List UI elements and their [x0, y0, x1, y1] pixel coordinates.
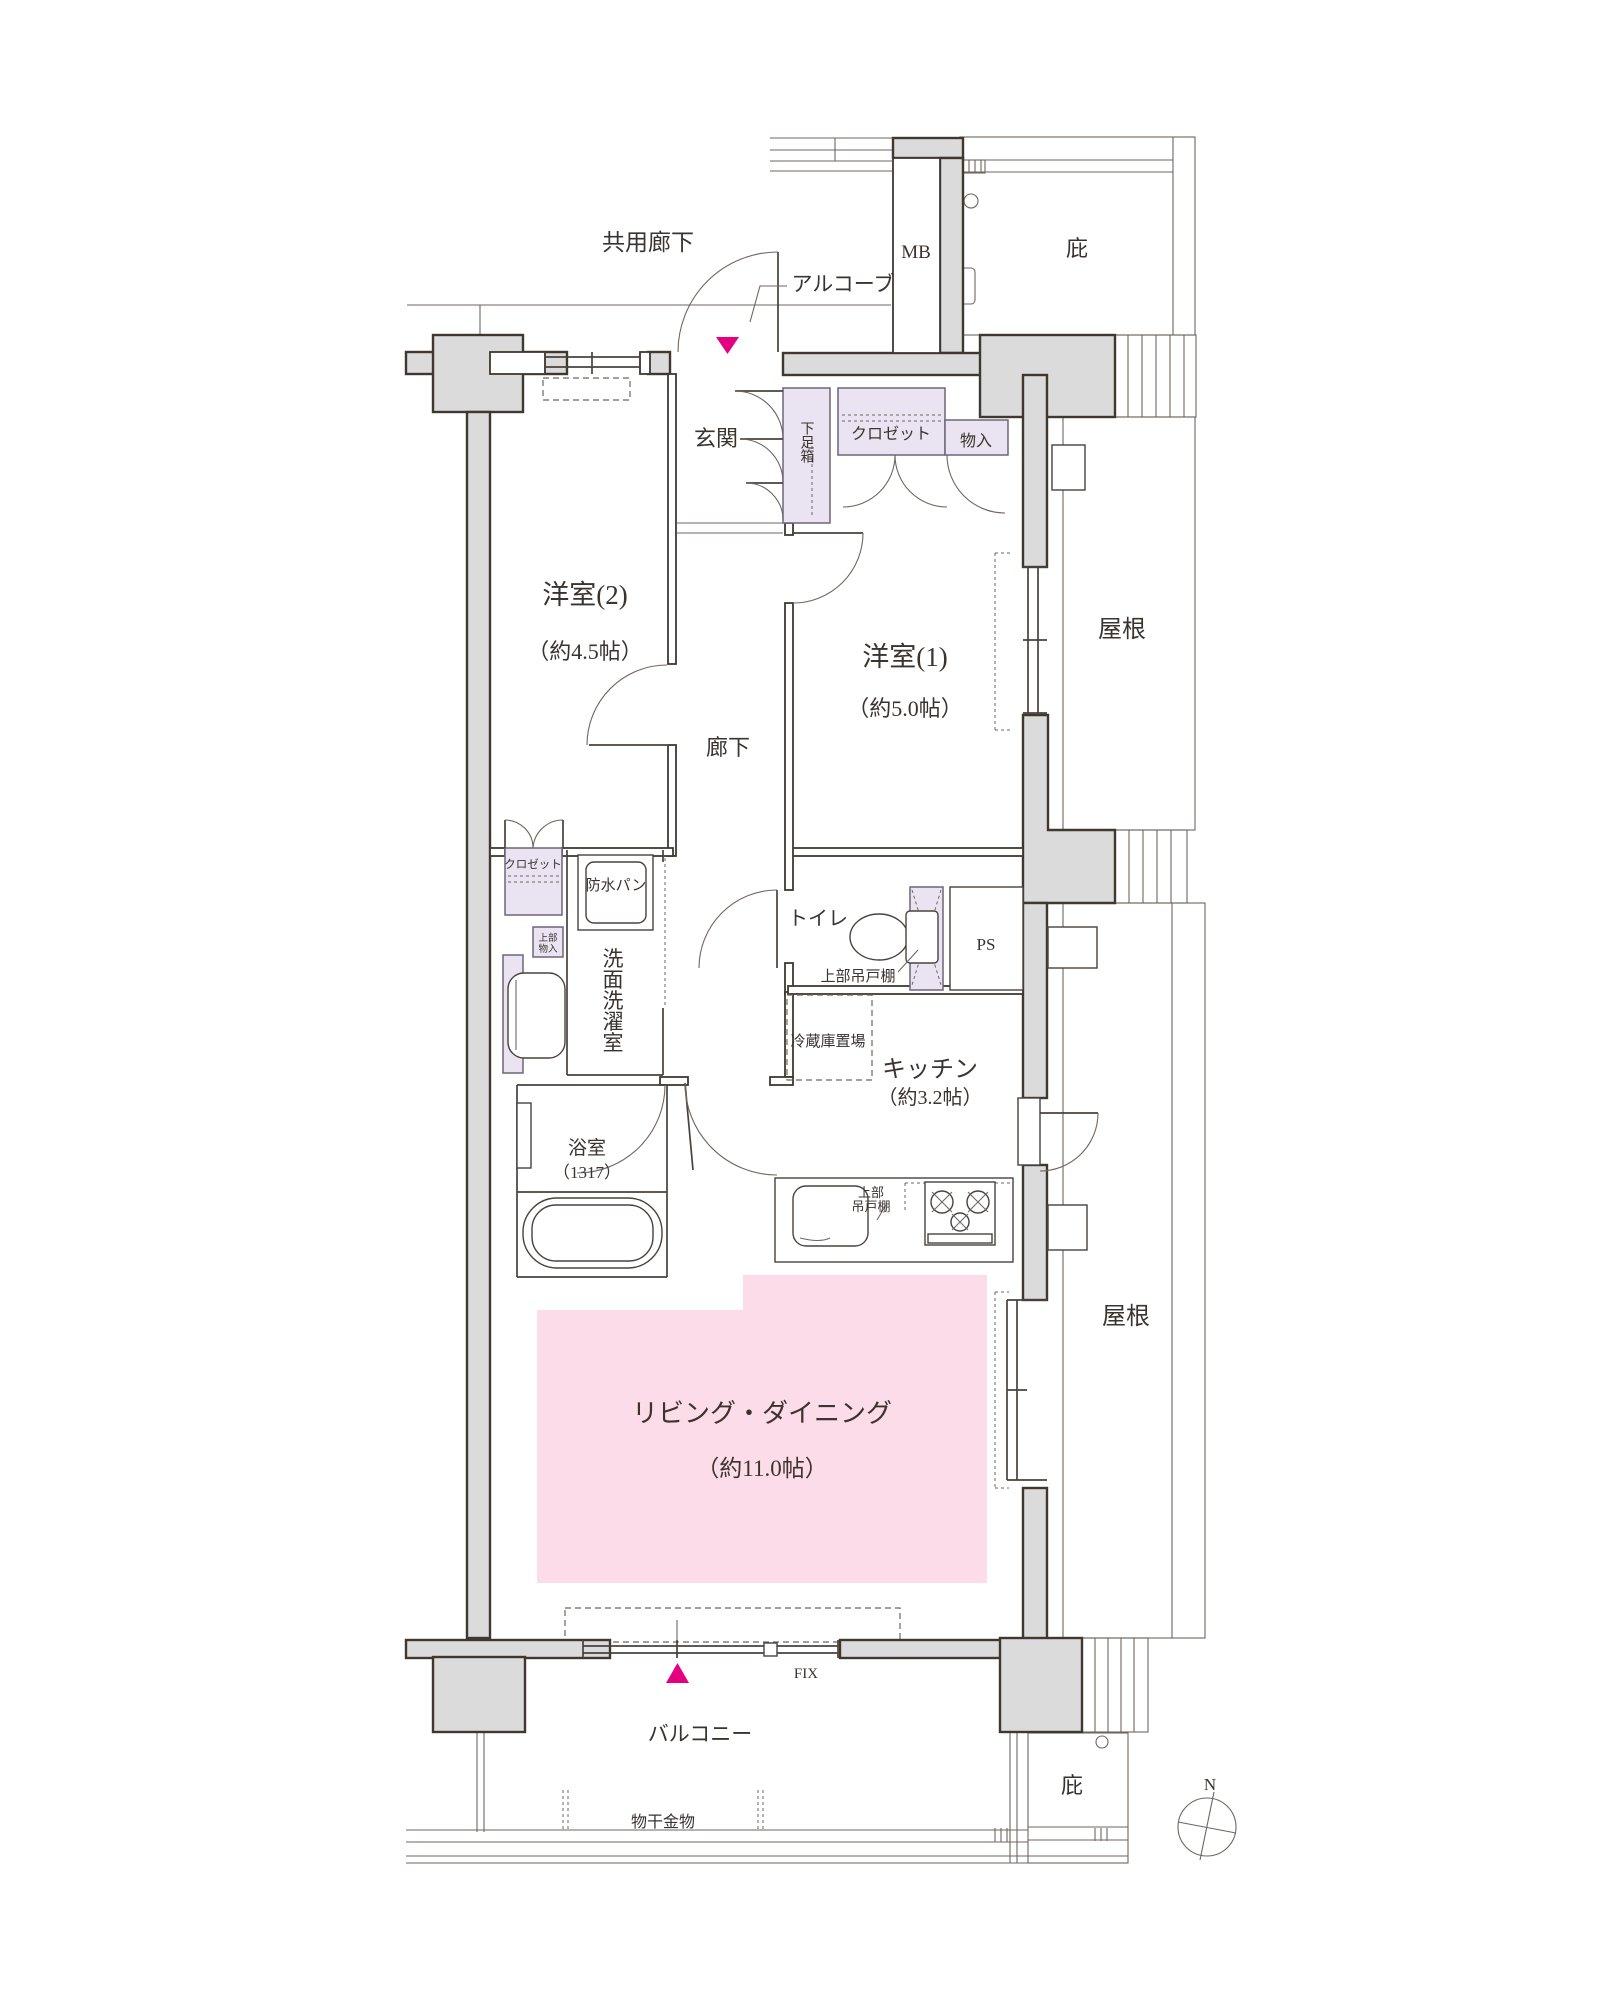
shutter-box	[1052, 445, 1085, 490]
alcove-leader-line	[750, 286, 787, 322]
kitchen-side-door-arc	[1040, 1113, 1098, 1171]
kitchen-sink-icon	[793, 1186, 868, 1246]
shutter-box	[1048, 1205, 1087, 1250]
label-living-dining: リビング・ダイニング	[632, 1399, 892, 1428]
label-toilet: トイレ	[788, 908, 848, 930]
label-upper-storage-1: 上部	[538, 932, 557, 944]
west-room1-door-arc	[793, 533, 863, 603]
label-west-room2: 洋室(2)	[542, 580, 627, 610]
label-upper-cabinet-kitchen-2: 吊戸棚	[851, 1199, 890, 1214]
label-mb: MB	[901, 242, 931, 263]
label-washroom: 洗面洗濯室	[600, 948, 624, 1053]
balcony-marker-icon	[666, 1663, 689, 1683]
label-upper-storage-2: 物入	[538, 943, 558, 955]
label-upper-cabinet-kitchen-1: 上部	[858, 1185, 884, 1200]
balcony-sliding-window	[583, 1640, 838, 1658]
living-door-arc	[685, 1083, 777, 1175]
label-alcove: アルコーブ	[791, 272, 894, 296]
toilet-icon	[850, 914, 908, 960]
label-storage-hall: 物入	[960, 432, 992, 450]
label-kitchen-size: （約3.2帖）	[878, 1086, 983, 1109]
shutter-box	[1048, 927, 1097, 968]
drain-pipe-icon	[964, 194, 978, 208]
label-living-dining-size: （約11.0帖）	[696, 1456, 827, 1481]
label-pipe-space: PS	[977, 935, 996, 954]
roof-lower	[1063, 903, 1205, 1638]
compass-icon	[1178, 1792, 1236, 1860]
label-west-room1: 洋室(1)	[862, 642, 947, 672]
label-fridge-space: 冷蔵庫置場	[790, 1033, 865, 1050]
entrance-marker-icon	[716, 337, 739, 354]
label-west-room2-size: （約4.5帖）	[527, 639, 643, 664]
label-west-room1-size: （約5.0帖）	[847, 696, 963, 721]
label-bathroom-size: （1317）	[553, 1163, 621, 1182]
label-shoe-box: 下足箱	[799, 421, 815, 463]
living-dining-floor	[537, 1275, 987, 1583]
label-eaves-top: 庇	[1066, 236, 1088, 261]
label-kitchen: キッチン	[882, 1057, 978, 1083]
label-fix: FIX	[794, 1666, 818, 1682]
bathtub-inner	[532, 1205, 653, 1261]
label-entrance: 玄関	[694, 426, 738, 451]
label-balcony: バルコニー	[648, 1722, 753, 1746]
west-room2-door-arc	[587, 665, 667, 745]
label-compass-north: N	[1204, 1775, 1216, 1794]
drain-pipe-icon	[1096, 1736, 1108, 1748]
label-upper-cabinet-toilet: 上部吊戸棚	[820, 968, 895, 985]
floor-plan-drawing: 共用廊下 アルコーブ MB 庇 玄関 下足箱 クロゼット 物入 洋室(2) （約…	[0, 0, 1600, 2000]
label-common-corridor: 共用廊下	[602, 230, 694, 255]
label-waterproof-pan: 防水パン	[586, 877, 647, 894]
bath-counter	[517, 1103, 531, 1168]
window-living-east	[995, 1292, 1047, 1488]
label-roof-upper: 屋根	[1098, 616, 1146, 643]
storage-boxes	[503, 388, 1008, 1252]
eaves-hatch-small	[963, 160, 985, 173]
label-bathroom: 浴室	[568, 1137, 606, 1159]
door-jamb	[1018, 1098, 1040, 1165]
toilet-door-arc	[699, 890, 777, 968]
awning-dashed-outline	[565, 1608, 900, 1642]
label-closet-hall: クロゼット	[851, 425, 931, 443]
label-laundry-hardware: 物干金物	[631, 1813, 695, 1831]
label-roof-lower: 屋根	[1102, 1303, 1150, 1330]
label-closet-west-room2: クロゼット	[504, 858, 562, 871]
label-eaves-bottom: 庇	[1061, 1773, 1083, 1798]
bathroom-door-arc	[577, 1085, 665, 1173]
window-west-room1-east	[995, 553, 1047, 730]
floor-plan-page: 共用廊下 アルコーブ MB 庇 玄関 下足箱 クロゼット 物入 洋室(2) （約…	[0, 0, 1600, 2000]
eaves-bottom	[1028, 1733, 1128, 1863]
stove-icon	[925, 1182, 995, 1245]
roof-hatch-strips	[1082, 335, 1196, 1732]
label-hallway: 廊下	[706, 735, 750, 760]
